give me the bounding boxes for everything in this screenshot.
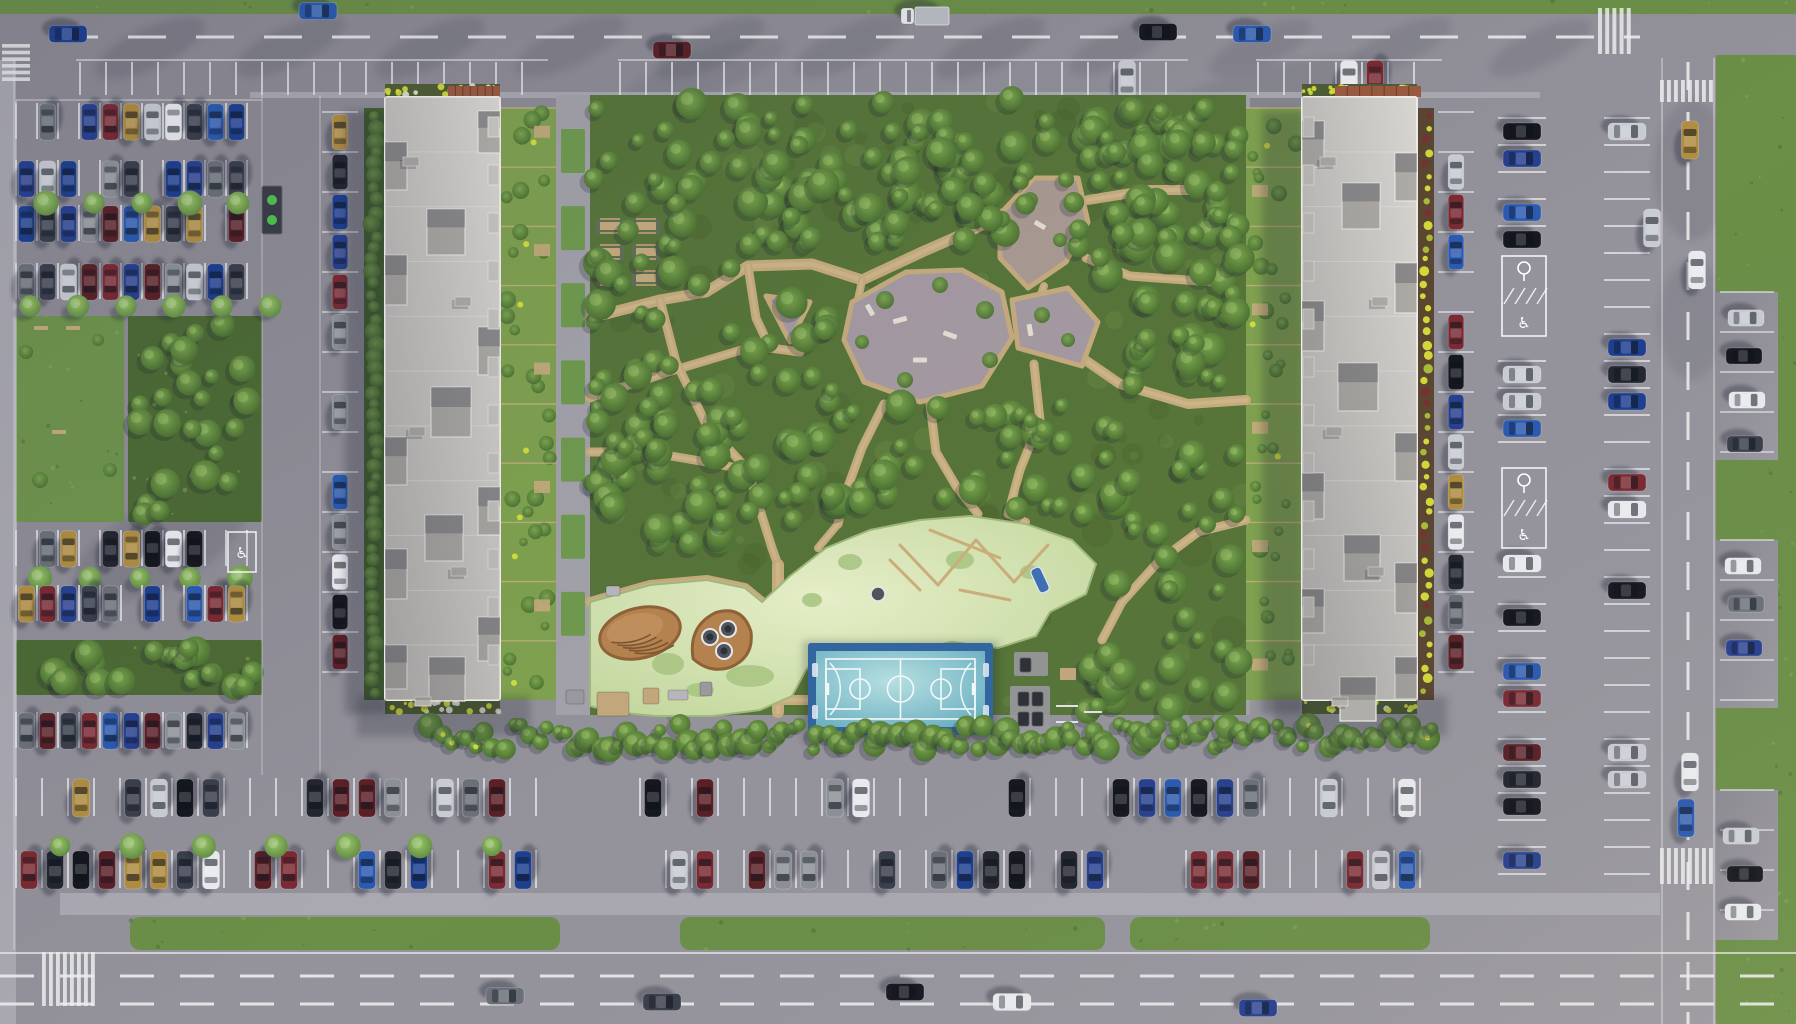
wheelchair-icon: ♿ <box>1517 526 1530 544</box>
waste-bin <box>1020 658 1031 672</box>
sidewalk <box>60 893 1660 915</box>
lane-grass-inset <box>561 129 585 173</box>
wheelchair-icon: ♿ <box>235 544 248 562</box>
scene-canvas: ♿♿♿ <box>0 0 1796 1024</box>
plaza <box>844 270 1012 402</box>
park-bench <box>66 326 80 330</box>
park-bench <box>34 326 48 330</box>
waste-bin <box>1018 692 1029 706</box>
play-equipment <box>606 586 620 596</box>
ev-charging-pad <box>262 186 282 234</box>
court-bench <box>812 663 818 677</box>
waste-bin <box>1032 712 1043 726</box>
lane-grass-inset <box>561 206 585 250</box>
plaza-bench <box>913 358 927 363</box>
grass-lawn <box>16 316 124 522</box>
picnic-table <box>636 274 656 282</box>
parking-row <box>16 706 252 756</box>
wheelchair-icon: ♿ <box>1517 314 1530 332</box>
play-equipment <box>566 690 584 704</box>
aerial-site-plan-render: ♿♿♿ <box>0 0 1796 1024</box>
play-equipment <box>668 690 688 700</box>
waste-bin <box>1018 712 1029 726</box>
court-bench <box>983 663 989 677</box>
play-equipment <box>643 688 659 704</box>
lane-grass-inset <box>561 592 585 636</box>
pergola <box>448 86 500 97</box>
flower-strip <box>1418 108 1434 700</box>
play-equipment <box>597 692 629 716</box>
court-bench <box>812 705 818 719</box>
grass-median <box>680 917 1105 950</box>
lane-grass-inset <box>561 438 585 482</box>
lane-grass-inset <box>561 515 585 559</box>
parking-row <box>16 97 247 147</box>
picnic-table <box>636 222 656 230</box>
pergola <box>1335 86 1421 97</box>
private-gardens <box>499 105 557 700</box>
play-equipment <box>700 682 712 696</box>
lane-grass-inset <box>561 360 585 404</box>
grass-median <box>130 917 560 950</box>
park-bench <box>52 430 66 434</box>
fitness-table <box>1060 668 1076 680</box>
waste-bin <box>1032 692 1043 706</box>
